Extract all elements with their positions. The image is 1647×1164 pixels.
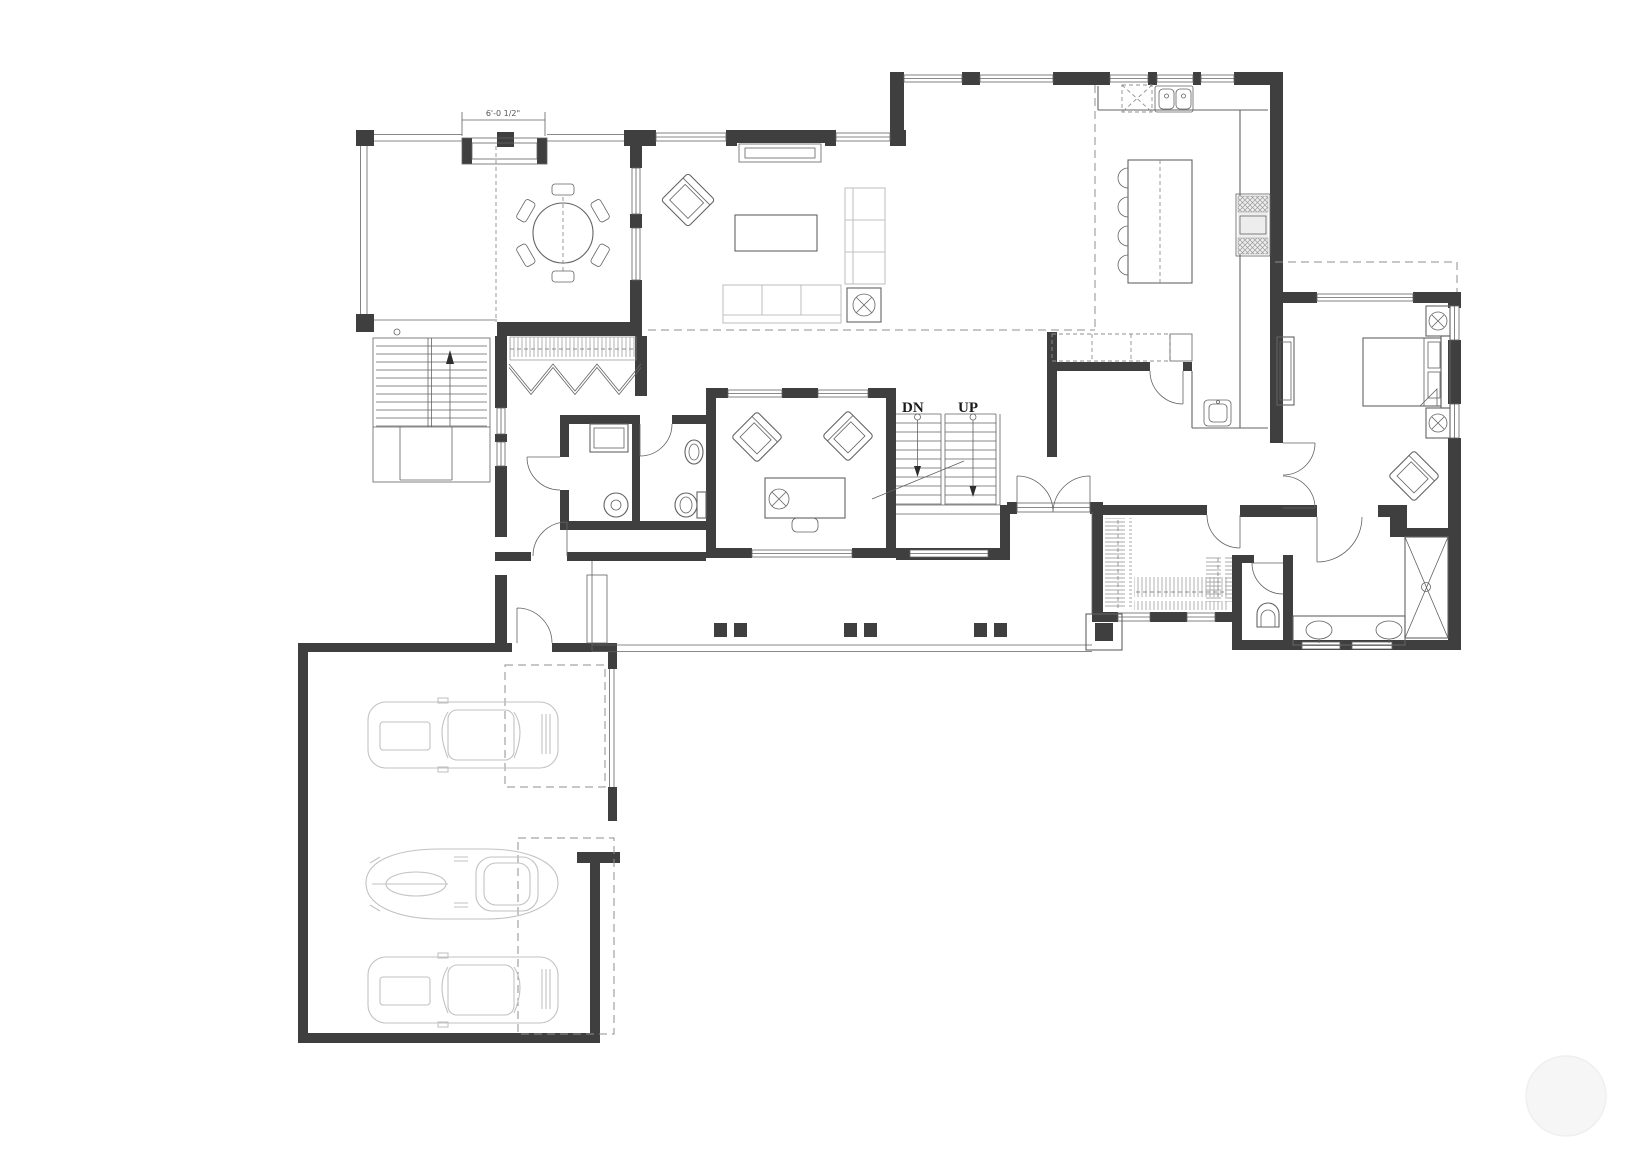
toilet-icon: [1257, 603, 1279, 627]
living-room: [661, 144, 885, 323]
desk: [765, 478, 845, 518]
nightstand-lamp-icon: [1426, 306, 1450, 336]
ceiling-break-lines: [648, 85, 1457, 330]
porch: [587, 512, 1122, 652]
desk-lamp-icon: [769, 489, 789, 509]
sofa: [723, 285, 841, 323]
sofa: [845, 188, 885, 284]
laundry-door: [527, 457, 560, 490]
bedroom-chair: [1389, 451, 1440, 502]
exterior-and-interior-walls: [298, 72, 1461, 1043]
floor-plan-svg: 6'-0 1/2": [0, 0, 1647, 1164]
kitchen-sink-icon: [1155, 86, 1193, 112]
pantry-door: [1150, 371, 1183, 404]
window-seat: [739, 144, 821, 162]
shower: [1405, 537, 1448, 638]
folding-glass-door: [509, 337, 641, 395]
dining-room: [496, 146, 610, 322]
walk-in-closet: [1104, 518, 1232, 610]
bar-stools: [1118, 168, 1128, 275]
car: [368, 953, 558, 1027]
car: [366, 849, 558, 919]
prep-sink-icon: [1204, 400, 1231, 426]
desk-chair: [792, 518, 818, 532]
master-bedroom: [1277, 306, 1450, 501]
utility-sink: [604, 493, 628, 517]
kitchen-island: [1118, 160, 1192, 283]
refrigerator-icon: [1236, 194, 1270, 256]
stairs-up-label: UP: [958, 400, 978, 416]
cooktop-icon: [1122, 85, 1152, 112]
powder-door: [640, 424, 672, 456]
pantry-cabinets: [1052, 334, 1192, 361]
deck: 6'-0 1/2": [361, 109, 625, 320]
nightstand-lamp-icon: [1426, 408, 1450, 438]
car: [368, 698, 558, 772]
side-table-lamp-icon: [847, 288, 881, 322]
armchair: [661, 173, 715, 227]
dimension-label: 6'-0 1/2": [486, 109, 520, 118]
dimension: 6'-0 1/2": [462, 109, 545, 136]
coffee-table: [735, 215, 817, 251]
office: [732, 411, 874, 532]
kitchen: [1052, 85, 1270, 428]
bed: [1363, 336, 1450, 408]
watermark: [1526, 1056, 1606, 1136]
powder-room: [640, 424, 706, 518]
office-armchair: [732, 412, 783, 463]
exterior-stairs: [373, 329, 490, 482]
garage: [366, 665, 614, 1034]
stairs-down-label: DN: [902, 400, 924, 416]
office-armchair: [823, 411, 874, 462]
laundry-room: [527, 424, 628, 517]
toilet-icon: [675, 492, 706, 518]
floor-plan-canvas: 6'-0 1/2": [0, 0, 1647, 1164]
